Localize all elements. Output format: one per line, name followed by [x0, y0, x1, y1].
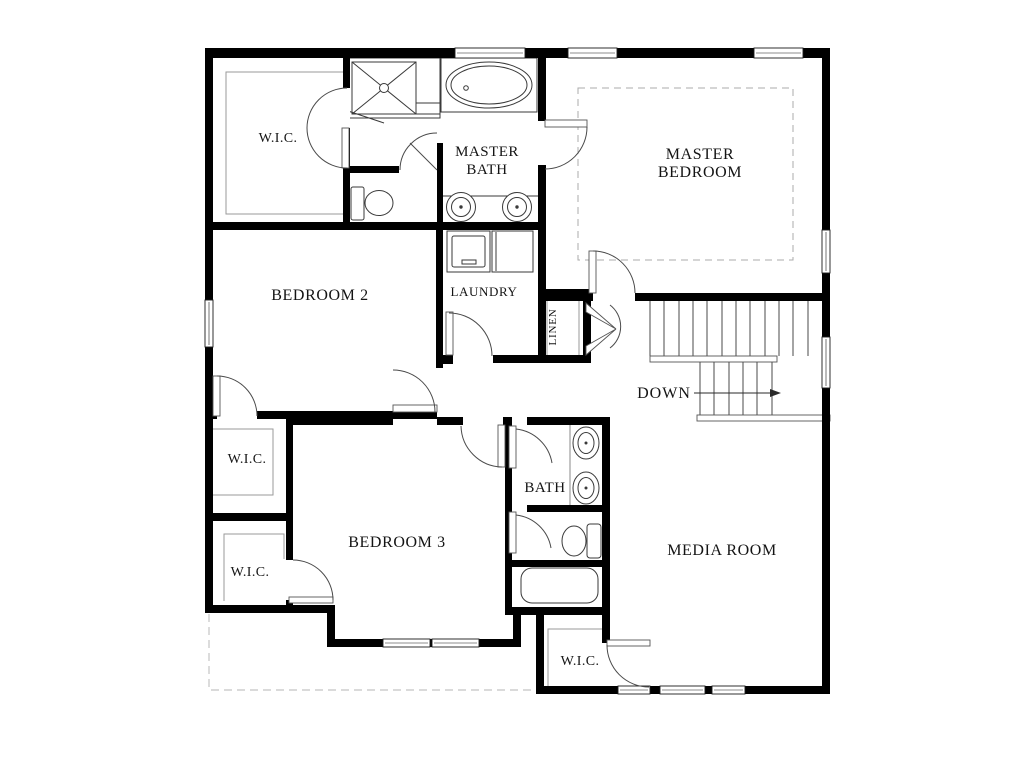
shower-fixture [345, 58, 440, 123]
label-master-bath-2: BATH [466, 162, 507, 178]
bath-tub [521, 568, 598, 603]
bath-toilet-tank [587, 524, 601, 558]
window [660, 686, 705, 694]
door-master-bath [545, 120, 587, 169]
label-wic-bedroom3: W.I.C. [231, 565, 270, 580]
label-master-bedroom-2: BEDROOM [658, 164, 742, 181]
label-wic-media: W.I.C. [561, 654, 600, 669]
door-wic-master [307, 88, 349, 168]
window [455, 48, 525, 58]
bath-sink-bottom-drain [585, 487, 588, 490]
staircase [650, 301, 830, 421]
label-linen: LINEN [547, 309, 559, 346]
toilet-bowl [365, 191, 393, 216]
window [754, 48, 803, 58]
window [205, 300, 213, 347]
tub-basin [451, 66, 527, 104]
stair-bottom-rail [697, 415, 830, 421]
stair-landing-rail [650, 356, 777, 362]
master-bathtub-fixture [441, 58, 537, 112]
laundry-fixtures [447, 231, 533, 272]
door-hall-closet [393, 370, 437, 412]
roof-below-outline [209, 614, 536, 690]
window [568, 48, 617, 58]
tub-faucet [464, 86, 469, 91]
window [712, 686, 745, 694]
door-openings [286, 88, 635, 600]
door-linen-bifold [586, 303, 621, 355]
door-bath-toilet [509, 512, 551, 553]
door-master-toilet [400, 133, 437, 170]
label-wic-bedroom2: W.I.C. [228, 452, 267, 467]
door-bedroom3 [461, 425, 505, 467]
stair-treads-upper [650, 301, 808, 356]
label-master-bedroom-1: MASTER [666, 146, 735, 163]
label-bedroom-3: BEDROOM 3 [348, 534, 445, 551]
stair-treads-lower [700, 362, 772, 415]
down-arrow-icon [770, 389, 781, 397]
window [822, 337, 830, 388]
room-labels: W.I.C. MASTER BATH MASTER BEDROOM BEDROO… [228, 131, 777, 669]
sink-left-drain [459, 205, 462, 208]
door-wic-media [607, 640, 650, 687]
sink-right-drain [515, 205, 518, 208]
window [432, 639, 479, 647]
door-master-bedroom [589, 251, 635, 293]
door-bedroom2 [213, 376, 257, 416]
bath-sink-top-drain [585, 442, 588, 445]
washer-handle [462, 260, 476, 264]
label-media-room: MEDIA ROOM [667, 542, 777, 559]
label-down: DOWN [637, 385, 691, 402]
master-toilet-fixture [351, 187, 393, 220]
shower-curb [416, 103, 440, 114]
master-vanity-fixture [443, 193, 538, 222]
label-bath: BATH [524, 480, 565, 496]
label-wic-master: W.I.C. [259, 131, 298, 146]
shower-drain [380, 84, 389, 93]
floor-plan-page: W.I.C. MASTER BATH MASTER BEDROOM BEDROO… [0, 0, 1024, 768]
dryer [492, 231, 533, 272]
door-wic-bedroom3 [289, 560, 333, 603]
bath-toilet-bowl [562, 526, 586, 556]
label-master-bath-1: MASTER [455, 144, 519, 160]
label-laundry: LAUNDRY [450, 284, 517, 299]
label-bedroom-2: BEDROOM 2 [271, 287, 368, 304]
window [383, 639, 430, 647]
window [822, 230, 830, 273]
door-hall-bath [509, 426, 552, 468]
hall-bath-fixtures [521, 425, 601, 603]
floor-plan-drawing: W.I.C. MASTER BATH MASTER BEDROOM BEDROO… [0, 0, 1024, 768]
toilet-tank [351, 187, 364, 220]
door-laundry [446, 312, 492, 356]
